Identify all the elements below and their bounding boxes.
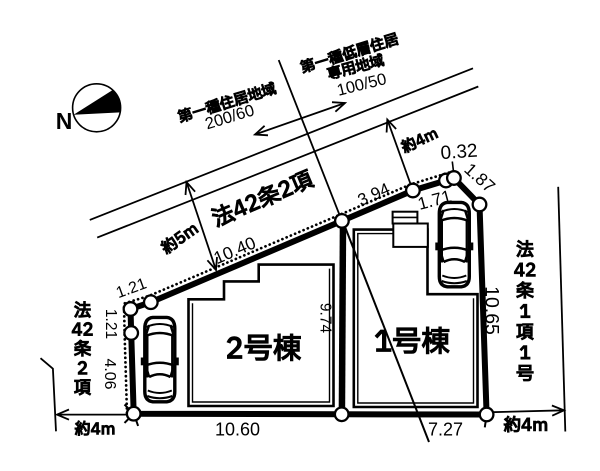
svg-text:1.21: 1.21: [102, 309, 119, 339]
svg-text:7.27: 7.27: [428, 420, 463, 440]
svg-text:10.65: 10.65: [481, 286, 503, 335]
svg-text:10.60: 10.60: [215, 420, 260, 440]
svg-text:N: N: [56, 108, 73, 134]
svg-text:9.74: 9.74: [316, 303, 333, 334]
svg-text:4.06: 4.06: [101, 358, 118, 389]
